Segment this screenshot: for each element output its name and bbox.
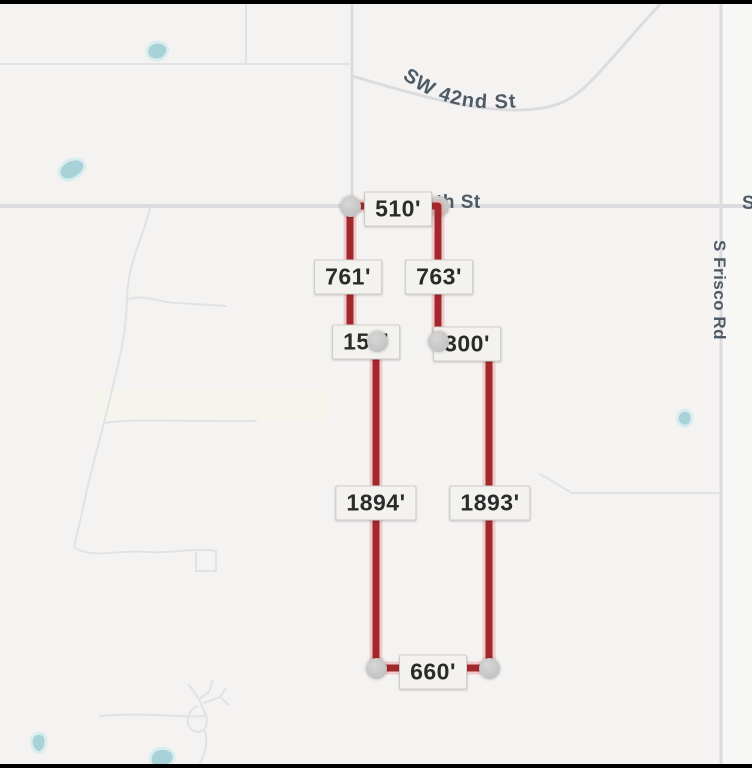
measure-endpoint-handle[interactable] [479, 658, 500, 679]
measure-endpoint-handle[interactable] [428, 331, 449, 352]
letterbox-bar-bottom [0, 764, 752, 768]
measure-label-1894: 1894' [335, 486, 416, 521]
measure-endpoint-handle[interactable] [367, 331, 388, 352]
measurement-overlay[interactable] [0, 0, 752, 768]
letterbox-bar-top [0, 0, 752, 4]
map-view[interactable]: SW 42nd St th St S S Frisco Rd 510' 761'… [0, 0, 752, 768]
measure-endpoint-handle[interactable] [366, 658, 387, 679]
measure-label-150: 150' [332, 325, 400, 360]
measure-label-660: 660' [399, 655, 467, 690]
measure-label-510: 510' [364, 192, 432, 227]
measure-label-763: 763' [405, 260, 473, 295]
measure-endpoint-handle[interactable] [340, 196, 361, 217]
measure-label-761: 761' [314, 260, 382, 295]
measure-label-1893: 1893' [449, 486, 530, 521]
